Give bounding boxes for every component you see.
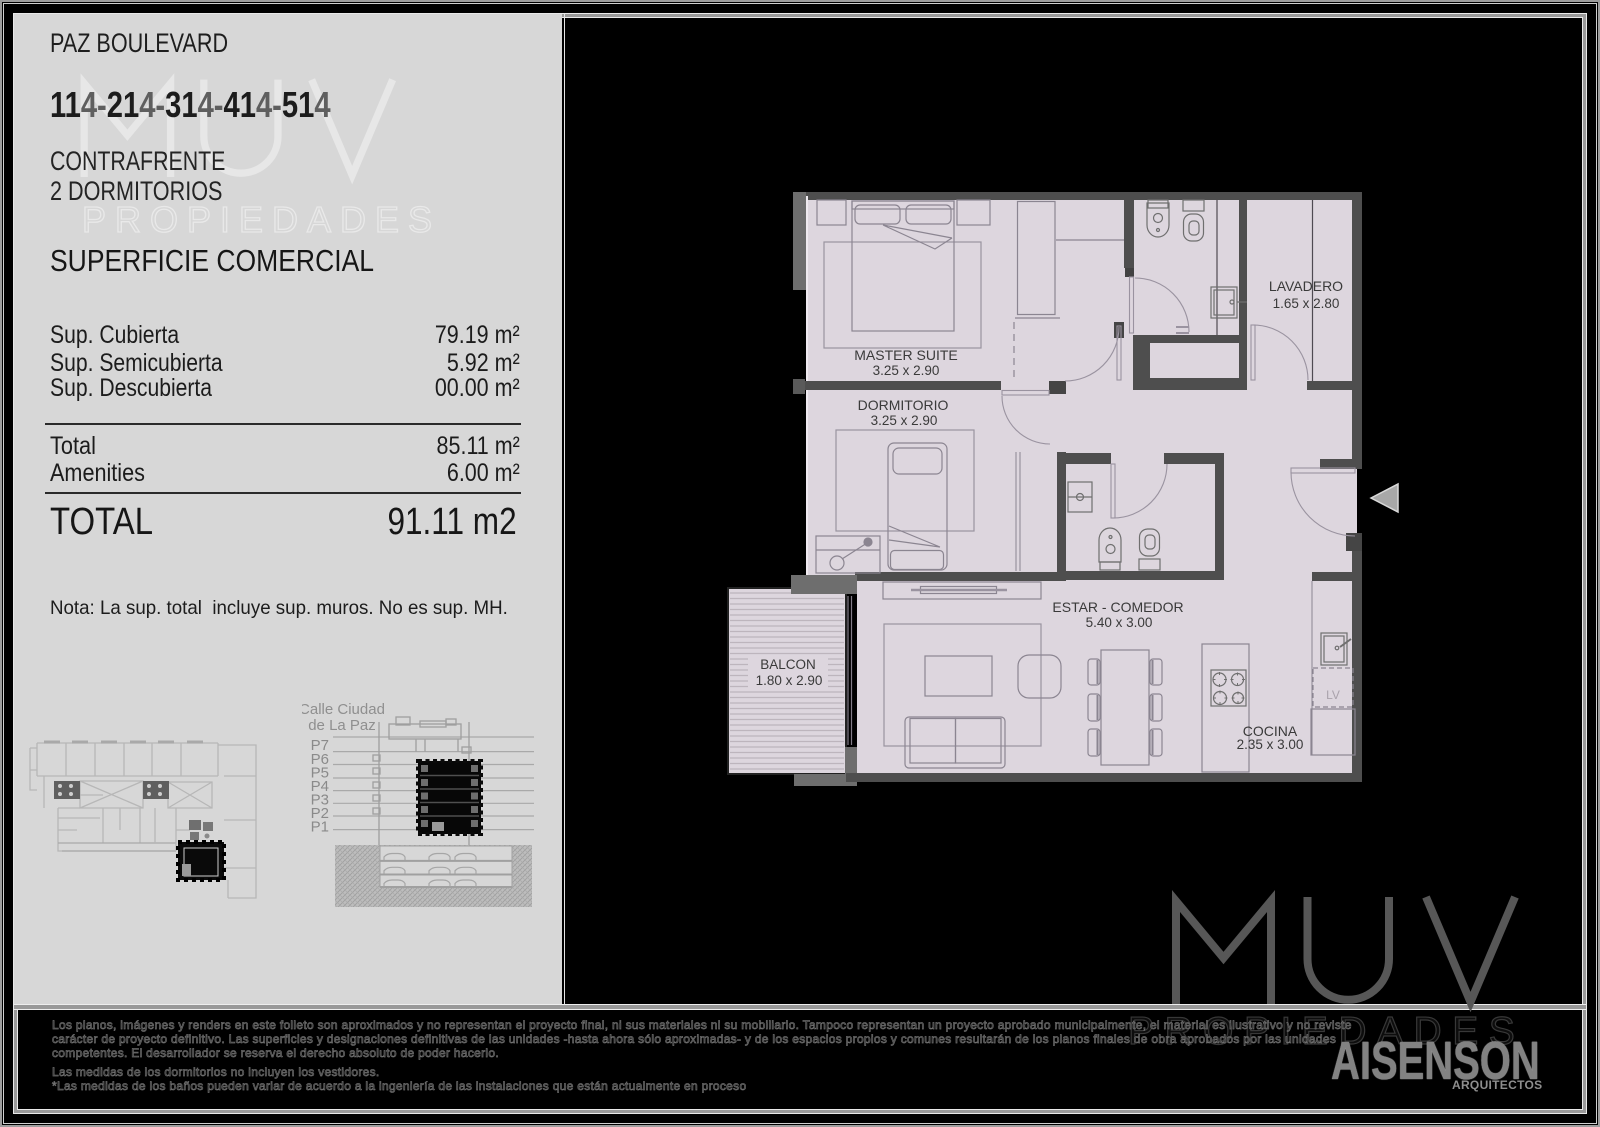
svg-text:DORMITORIO: DORMITORIO bbox=[858, 397, 949, 413]
svg-text:3.25 x 2.90: 3.25 x 2.90 bbox=[873, 363, 940, 378]
svg-text:LV: LV bbox=[1326, 688, 1340, 702]
svg-text:5.40 x 3.00: 5.40 x 3.00 bbox=[1086, 615, 1153, 630]
svg-text:1.80 x 2.90: 1.80 x 2.90 bbox=[756, 673, 823, 688]
svg-text:ESTAR - COMEDOR: ESTAR - COMEDOR bbox=[1052, 599, 1183, 615]
svg-text:1.65 x 2.80: 1.65 x 2.80 bbox=[1273, 296, 1340, 311]
svg-text:P1: P1 bbox=[311, 819, 329, 836]
svg-text:LAVADERO: LAVADERO bbox=[1269, 278, 1343, 294]
svg-text:3.25 x 2.90: 3.25 x 2.90 bbox=[871, 413, 938, 428]
svg-text:Calle Ciudad: Calle Ciudad bbox=[302, 701, 385, 718]
svg-text:de La Paz: de La Paz bbox=[308, 717, 376, 734]
svg-text:MASTER SUITE: MASTER SUITE bbox=[854, 347, 957, 363]
svg-text:2.35 x 3.00: 2.35 x 3.00 bbox=[1237, 737, 1304, 752]
svg-text:BALCON: BALCON bbox=[760, 657, 816, 672]
